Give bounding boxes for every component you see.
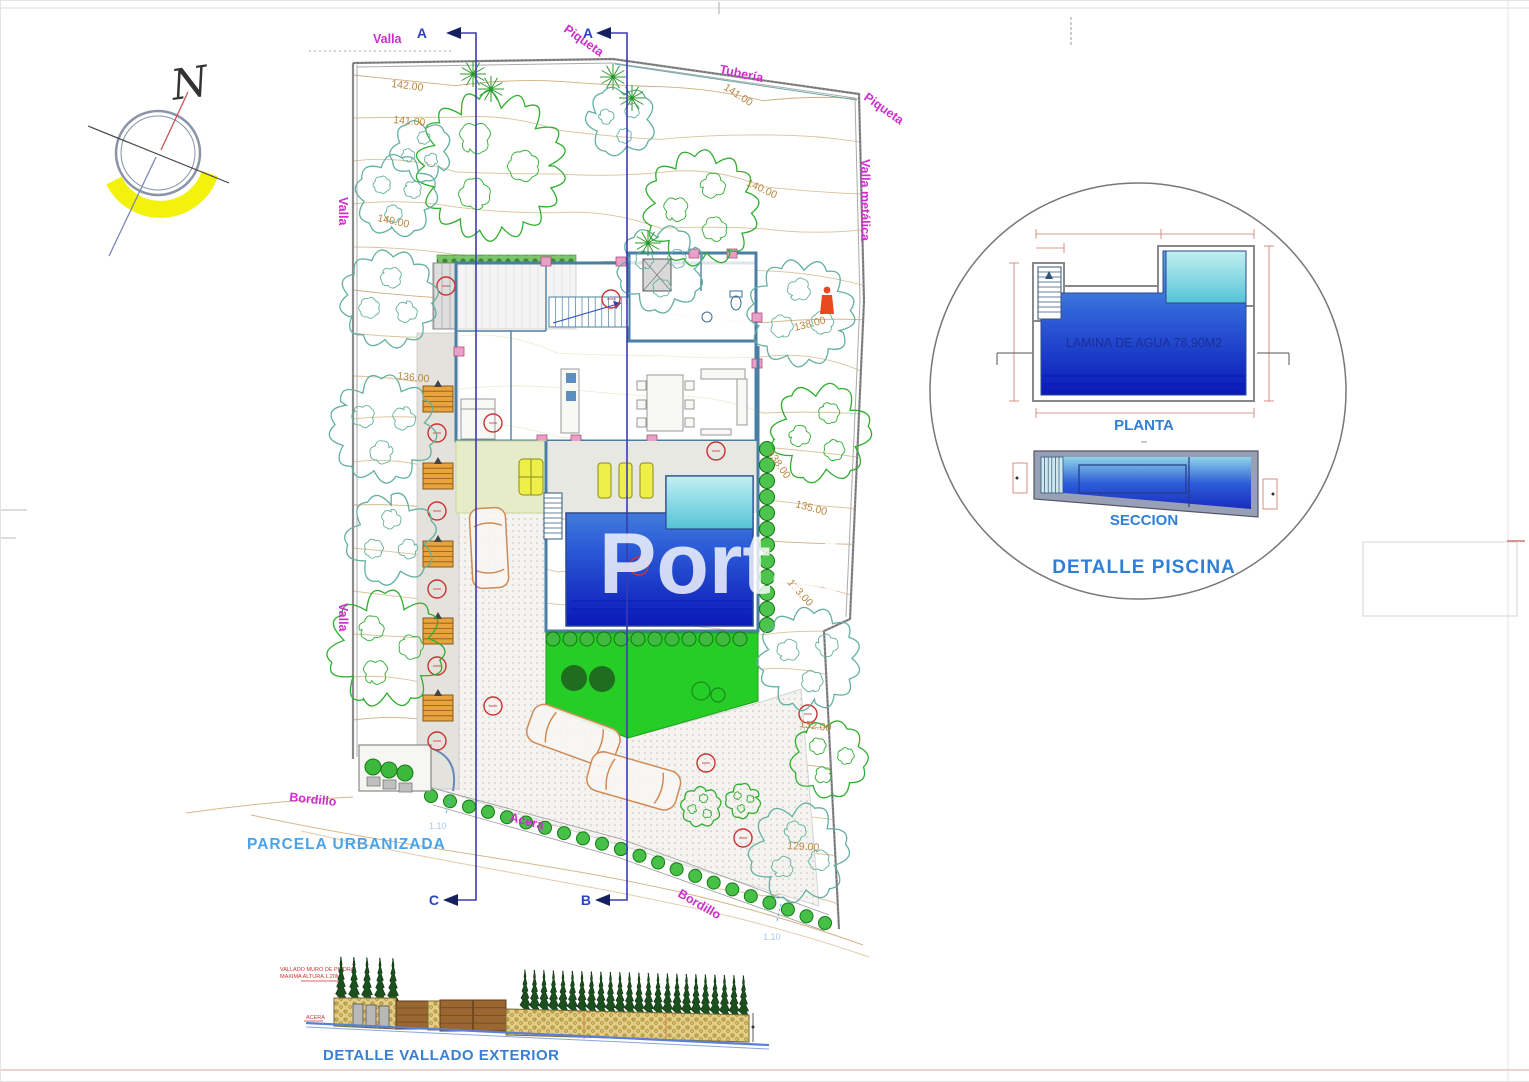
valla-left-lower-label: Valla: [336, 603, 350, 633]
cypress-tree-icon: [587, 972, 598, 1015]
valla-left-upper-label: Valla: [336, 197, 350, 227]
hedge-bush-icon: [670, 863, 683, 876]
tree-foliage-icon: [373, 176, 390, 193]
kitchen-appliance: [566, 391, 576, 401]
section-marker-a-left: A: [417, 25, 427, 41]
tree-foliage-icon: [396, 301, 417, 323]
hedge-bush-icon: [444, 795, 457, 808]
bush-icon: [381, 762, 397, 778]
cypress-tree-icon: [634, 973, 645, 1016]
drawing-sheet: N: [0, 0, 1529, 1082]
hedge-bush-icon: [482, 805, 495, 818]
hedge-bush-icon: [558, 827, 571, 840]
utility-door: [379, 1006, 389, 1028]
dim-1-10: 1.10: [763, 932, 781, 942]
car-icon: [469, 507, 509, 589]
tree-foliage-icon: [382, 509, 401, 529]
stone-wall-right: [506, 1009, 749, 1042]
hedge-bush-icon: [744, 890, 757, 903]
tree-foliage-icon: [365, 539, 384, 558]
cypress-tree-icon: [682, 974, 693, 1017]
cypress-tree-icon: [691, 975, 702, 1018]
north-label: N: [167, 56, 212, 110]
pool-stairs: [544, 493, 562, 539]
section-stairs: [1041, 457, 1063, 493]
cypress-tree-icon: [568, 971, 579, 1014]
shrub-icon: [561, 665, 587, 691]
tree-foliage-icon: [777, 639, 799, 660]
section-arrow-icon: [443, 894, 458, 906]
wooden-step-flight: [423, 541, 453, 567]
wooden-step-flight: [423, 695, 453, 721]
cypress-tree-icon: [530, 970, 541, 1013]
cypress-tree-icon: [663, 974, 674, 1017]
hedge-bush-icon: [596, 837, 609, 850]
tree-foliage-icon: [359, 616, 384, 641]
tree-foliage-icon: [402, 149, 415, 162]
tree-foliage-icon: [802, 670, 824, 691]
cypress-tree-icon: [739, 976, 750, 1019]
hedge-bush-icon: [631, 632, 645, 646]
tree-foliage-icon: [816, 634, 839, 656]
tree-foliage-icon: [599, 109, 614, 124]
hedge-bush-icon: [819, 917, 832, 930]
person-figure: [820, 287, 834, 314]
cypress-tree-icon: [615, 973, 626, 1016]
tree-foliage-icon: [664, 198, 688, 222]
toilet-fixture: [731, 296, 741, 310]
planta-label: PLANTA: [1114, 417, 1174, 434]
interior-stairs: [549, 297, 629, 327]
tree-icon: [747, 260, 855, 367]
hedge-bush-icon: [733, 632, 747, 646]
cypress-tree-icon: [720, 975, 731, 1018]
hedge-bush-icon: [563, 632, 577, 646]
fence-note-line1: VALLADO MURO DE PIEDRA: [280, 967, 355, 973]
gate-pillar: [428, 1001, 440, 1030]
tree-foliage-icon: [459, 178, 491, 210]
contour-line: [353, 202, 866, 233]
cypress-tree-icon: [644, 973, 655, 1016]
cypress-tree-icon: [653, 974, 664, 1017]
hedge-bush-icon: [665, 632, 679, 646]
hedge-bush-icon: [760, 474, 775, 489]
contour-label: 141.00: [393, 114, 426, 129]
detalle-piscina-title: DETALLE PISCINA: [1052, 557, 1236, 578]
bed: [461, 399, 495, 439]
contour-label: 140.00: [376, 212, 410, 230]
hedge-bush-icon: [577, 832, 590, 845]
cypress-tree-icon: [672, 974, 683, 1017]
parcela-urbanizada-label: PARCELA URBANIZADA: [247, 836, 446, 853]
bush-icon: [365, 759, 381, 775]
cypress-tree-icon: [577, 972, 588, 1015]
contour-label: 140.00: [745, 177, 779, 202]
fence-detail-view: VALLADO MURO DE PIEDRA MAXIMA ALTURA 1,2…: [280, 957, 769, 1064]
utility-door: [366, 1005, 376, 1027]
door-marker-icon: [752, 313, 762, 322]
contour-label: 142.00: [391, 78, 424, 94]
dim-1-10: 1.10: [429, 821, 447, 831]
tree-icon: [643, 150, 759, 266]
hedge-bush-icon: [726, 883, 739, 896]
tree-foliage-icon: [352, 406, 375, 428]
cypress-tree-icon: [375, 958, 387, 1003]
tree-foliage-icon: [359, 297, 380, 318]
dining-table: [647, 375, 683, 431]
tree-foliage-icon: [363, 661, 387, 685]
door-marker-icon: [541, 257, 551, 266]
sun-loungers: [598, 463, 653, 498]
valla-metalica-label: Valla metálica: [858, 159, 872, 242]
fence-note-line2: MAXIMA ALTURA 1,20M: [280, 974, 341, 980]
hedge-bush-icon: [614, 632, 628, 646]
contour-label: 138.00: [793, 314, 827, 333]
cypress-tree-icon: [388, 959, 400, 1004]
cypress-tree-icon: [539, 971, 550, 1014]
utility-door: [353, 1004, 363, 1026]
door-marker-icon: [454, 347, 464, 356]
kitchen-appliance: [566, 373, 576, 383]
wooden-gates: [396, 1000, 506, 1031]
parasol-table: [519, 459, 543, 495]
cypress-tree-icon: [558, 971, 569, 1014]
starburst-plant-icon: [600, 64, 626, 90]
shrub-icon: [589, 666, 615, 692]
piqueta-right-label: Piqueta: [861, 90, 907, 128]
hedge-bush-icon: [800, 910, 813, 923]
cypress-tree-icon: [549, 971, 560, 1014]
section-marker-c: C: [429, 892, 439, 908]
hedge-bush-icon: [781, 903, 794, 916]
hedge-bush-icon: [716, 632, 730, 646]
empty-title-box: [1363, 542, 1517, 616]
cypress-tree-icon: [710, 975, 721, 1018]
sun-lounger: [619, 463, 632, 498]
hedge-bush-icon: [760, 490, 775, 505]
tree-foliage-icon: [787, 278, 810, 300]
tree-foliage-icon: [838, 748, 855, 765]
hedge-bush-icon: [648, 632, 662, 646]
hedge-bush-icon: [597, 632, 611, 646]
fence-acera-label: ACERA: [306, 1015, 325, 1021]
pool-plan-stairs: [1038, 267, 1061, 319]
cypress-tree-icon: [520, 970, 531, 1013]
cypress-trees-left: [336, 957, 400, 1004]
bordillo-bottom-label: Bordillo: [676, 886, 724, 922]
contour-label: 129.00: [787, 840, 820, 854]
tree-foliage-icon: [404, 181, 421, 198]
wooden-step-flight: [423, 463, 453, 489]
starburst-plant-icon: [619, 85, 645, 111]
hedge-bush-icon: [699, 632, 713, 646]
north-compass: N: [88, 56, 229, 256]
tv-unit: [701, 429, 731, 435]
site-plan-drawing: N: [1, 1, 1529, 1081]
hedge-bush-icon: [682, 632, 696, 646]
contour-line: [353, 159, 866, 194]
cypress-tree-icon: [349, 957, 361, 1002]
hedge-bush-icon: [652, 856, 665, 869]
cypress-tree-icon: [596, 972, 607, 1015]
tree-foliage-icon: [771, 315, 793, 337]
cypress-tree-icon: [625, 973, 636, 1016]
fence-detail-title: DETALLE VALLADO EXTERIOR: [323, 1047, 559, 1064]
sofa: [701, 369, 745, 379]
sun-lounger: [640, 463, 653, 498]
starburst-plant-icon: [478, 76, 504, 102]
hedge-bush-icon: [763, 896, 776, 909]
cypress-tree-icon: [729, 976, 740, 1019]
tree-foliage-icon: [617, 129, 632, 144]
hedge-bush-icon: [707, 876, 720, 889]
pool-detail-view: LAMINA DE AGUA 78,90M2 PLANTA SECCION DE…: [930, 183, 1346, 599]
tree-foliage-icon: [702, 217, 727, 242]
cypress-tree-icon: [362, 958, 374, 1003]
tree-foliage-icon: [507, 150, 538, 181]
section-marker-b: B: [581, 892, 591, 908]
contour-label: 136.00: [397, 370, 430, 385]
tree-foliage-icon: [398, 539, 418, 559]
hedge-bush-icon: [633, 849, 646, 862]
tree-foliage-icon: [700, 173, 725, 198]
tree-foliage-icon: [393, 407, 416, 430]
tree-foliage-icon: [810, 738, 827, 755]
bush-icon: [397, 765, 413, 781]
wooden-step-flight: [423, 386, 453, 412]
hedge-bush-icon: [689, 869, 702, 882]
section-arrow-icon: [446, 27, 461, 39]
valla-top-label: Valla: [373, 32, 403, 46]
hedge-bush-icon: [615, 843, 628, 856]
tree-foliage-icon: [824, 440, 845, 461]
tree-foliage-icon: [381, 268, 402, 289]
tree-foliage-icon: [460, 123, 491, 154]
bordillo-left-label: Bordillo: [289, 790, 338, 809]
watermark-text: Portal: [599, 516, 843, 612]
tree-foliage-icon: [789, 425, 811, 446]
tree-foliage-icon: [417, 131, 430, 144]
seccion-label: SECCION: [1110, 512, 1178, 529]
tree-foliage-icon: [819, 403, 840, 424]
section-arrow-icon: [596, 27, 611, 39]
water-area-label: LAMINA DE AGUA 78,90M2: [1066, 336, 1222, 350]
section-arrow-icon: [595, 894, 610, 906]
hedge-bush-icon: [580, 632, 594, 646]
house-plan: [433, 249, 762, 444]
cypress-tree-icon: [606, 972, 617, 1015]
cypress-tree-icon: [701, 975, 712, 1018]
hedge-bush-icon: [546, 632, 560, 646]
tree-foliage-icon: [815, 767, 831, 783]
spa-water: [1166, 251, 1246, 303]
contour-label: 141.00: [721, 81, 755, 109]
sun-lounger: [598, 463, 611, 498]
hedge-bush-icon: [463, 800, 476, 813]
